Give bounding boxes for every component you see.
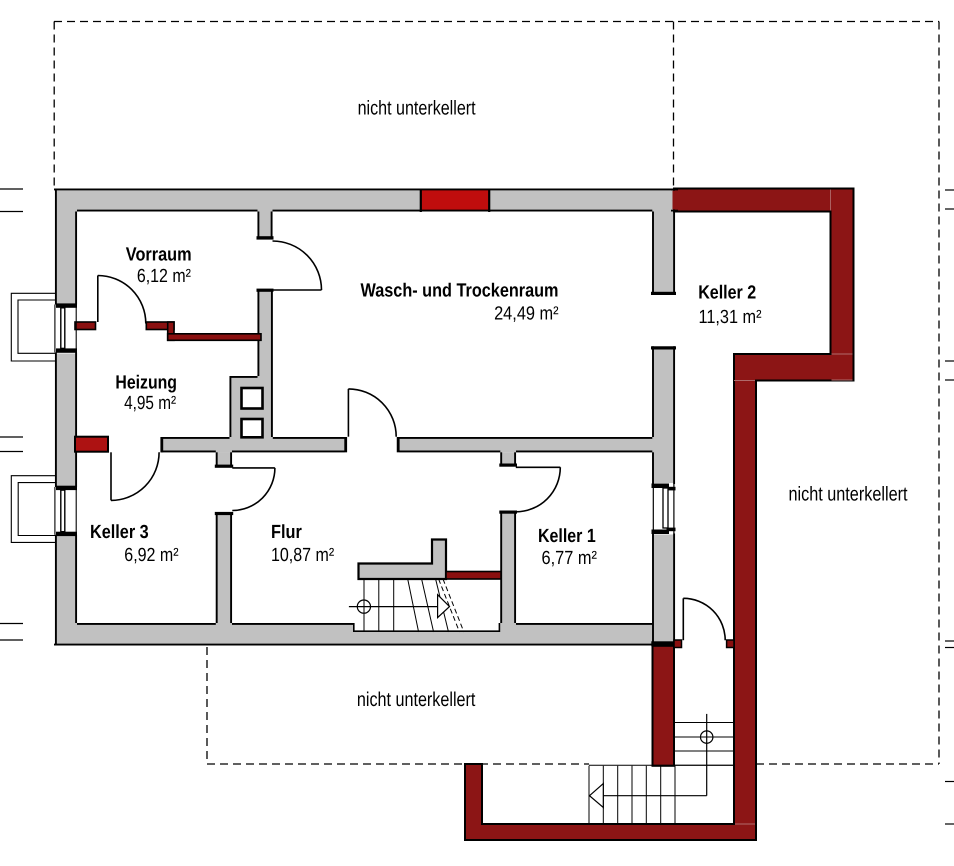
svg-text:4,95 m²: 4,95 m² [124,393,176,414]
svg-text:24,49 m²: 24,49 m² [494,304,558,325]
svg-text:Flur: Flur [271,522,302,543]
svg-text:nicht unterkellert: nicht unterkellert [357,689,476,711]
svg-text:Wasch- und Trockenraum: Wasch- und Trockenraum [361,280,559,301]
svg-text:Keller 2: Keller 2 [698,282,756,303]
svg-text:nicht unterkellert: nicht unterkellert [358,98,476,120]
svg-text:6,92 m²: 6,92 m² [124,545,178,566]
svg-text:Heizung: Heizung [115,373,177,394]
svg-text:Vorraum: Vorraum [126,244,192,265]
svg-text:11,31 m²: 11,31 m² [699,307,762,328]
svg-text:Keller 1: Keller 1 [538,526,596,547]
svg-text:nicht unterkellert: nicht unterkellert [789,483,908,505]
svg-text:6,77 m²: 6,77 m² [542,548,598,569]
svg-text:Keller 3: Keller 3 [90,522,149,543]
svg-text:6,12 m²: 6,12 m² [137,266,191,287]
svg-text:10,87 m²: 10,87 m² [271,545,334,566]
